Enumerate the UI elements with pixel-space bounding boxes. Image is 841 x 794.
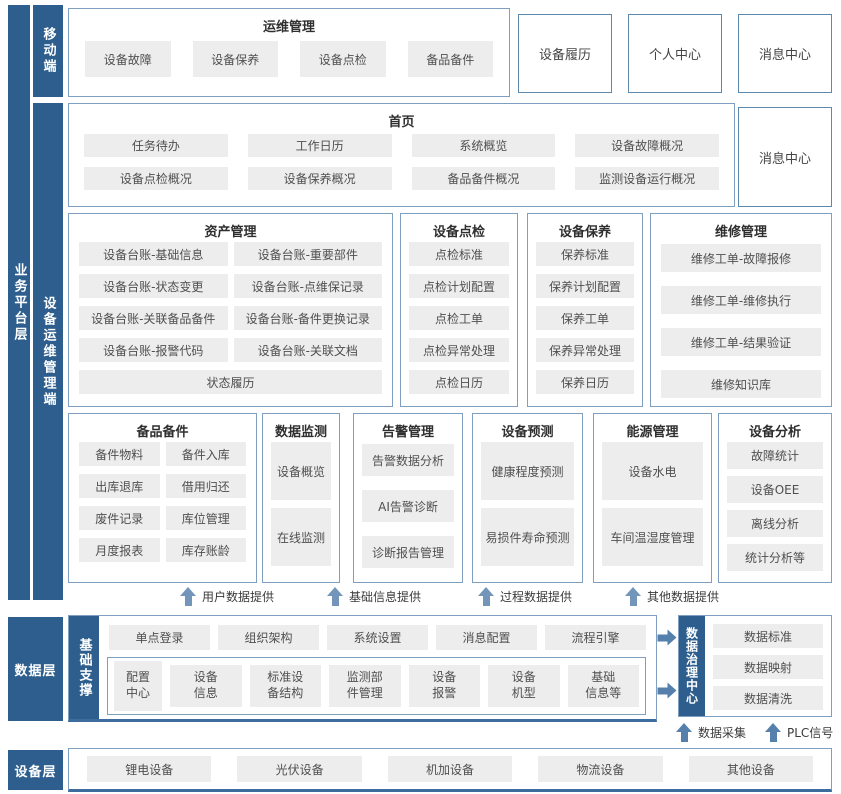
up-arrow-icon [625, 587, 641, 606]
mobile-item: 备品备件 [408, 41, 494, 77]
maintenance-item: 保养工单 [536, 306, 634, 330]
panel-repair: 维修管理 维修工单-故障报修 维修工单-维修执行 维修工单-结果验证 维修知识库 [650, 213, 832, 407]
governance-label: 数据治理中心 [679, 616, 705, 716]
alarm-item: 诊断报告管理 [362, 536, 454, 568]
mobile-item: 设备保养 [193, 41, 279, 77]
panel-title: 设备分析 [719, 414, 831, 440]
flow-data-collection: 数据采集 [676, 723, 746, 742]
base-item: 基础 信息等 [568, 665, 640, 707]
home-item: 监测设备运行概况 [575, 167, 719, 190]
flow-label: PLC信号 [787, 724, 833, 741]
asset-item: 设备台账-重要部件 [234, 242, 383, 266]
base-item: 组织架构 [218, 625, 319, 650]
home-item: 工作日历 [248, 134, 392, 157]
governance-item: 数据清洗 [713, 686, 823, 710]
base-item: 流程引擎 [545, 625, 646, 650]
flow-label: 数据采集 [698, 724, 746, 741]
panel-title: 资产管理 [69, 214, 392, 240]
flow-plc-signal: PLC信号 [765, 723, 833, 742]
monitor-item: 在线监测 [271, 508, 331, 566]
panel-title: 备品备件 [69, 414, 256, 440]
base-item: 设备 信息 [170, 665, 242, 707]
analysis-item: 故障统计 [727, 442, 823, 469]
panel-title: 首页 [69, 104, 734, 130]
home-item: 任务待办 [84, 134, 228, 157]
panel-alarm-management: 告警管理 告警数据分析 AI告警诊断 诊断报告管理 [353, 413, 463, 583]
inspection-item: 点检日历 [409, 370, 509, 394]
panel-inspection: 设备点检 点检标准 点检计划配置 点检工单 点检异常处理 点检日历 [400, 213, 518, 407]
inspection-item: 点检标准 [409, 242, 509, 266]
base-support-label: 基础支撑 [69, 616, 99, 719]
energy-item: 设备水电 [602, 442, 703, 500]
panel-home: 首页 任务待办 工作日历 系统概览 设备故障概况 设备点检概况 设备保养概况 备… [68, 103, 735, 207]
device-item: 机加设备 [388, 756, 512, 782]
energy-item: 车间温湿度管理 [602, 508, 703, 566]
asset-item: 状态履历 [79, 370, 382, 394]
inspection-item: 点检异常处理 [409, 338, 509, 362]
panel-title: 告警管理 [354, 414, 462, 440]
box-message-center-2: 消息中心 [738, 107, 832, 207]
asset-item: 设备台账-报警代码 [79, 338, 228, 362]
asset-item: 设备台账-点维保记录 [234, 274, 383, 298]
repair-item: 维修工单-结果验证 [661, 328, 821, 356]
spares-item: 备件物料 [79, 442, 160, 466]
analysis-item: 离线分析 [727, 510, 823, 537]
spares-item: 备件入库 [166, 442, 247, 466]
box-message-center: 消息中心 [738, 14, 832, 93]
flow-base-info: 基础信息提供 [327, 587, 421, 606]
spares-item: 废件记录 [79, 506, 160, 530]
analysis-item: 设备OEE [727, 476, 823, 503]
up-arrow-icon [676, 723, 692, 742]
base-item: 设备 报警 [409, 665, 481, 707]
base-item: 标准设 备结构 [250, 665, 322, 707]
right-arrow-icon [658, 683, 677, 699]
panel-data-governance: 数据治理中心 数据标准 数据映射 数据清洗 [678, 615, 832, 717]
panel-asset-management: 资产管理 设备台账-基础信息 设备台账-重要部件 设备台账-状态变更 设备台账-… [68, 213, 393, 407]
architecture-diagram: 业务平台层 移动端 设备运维管理端 运维管理 设备故障 设备保养 设备点检 备品… [0, 0, 841, 794]
panel-title: 设备预测 [473, 414, 582, 440]
base-item: 配置 中心 [114, 661, 162, 711]
panel-devices: 锂电设备 光伏设备 机加设备 物流设备 其他设备 [68, 748, 832, 792]
up-arrow-icon [478, 587, 494, 606]
flow-label: 其他数据提供 [647, 588, 719, 605]
asset-item: 设备台账-备件更换记录 [234, 306, 383, 330]
up-arrow-icon [327, 587, 343, 606]
asset-item: 设备台账-关联文档 [234, 338, 383, 362]
inspection-item: 点检工单 [409, 306, 509, 330]
predict-item: 易损件寿命预测 [481, 508, 574, 566]
asset-item: 设备台账-状态变更 [79, 274, 228, 298]
maintenance-item: 保养日历 [536, 370, 634, 394]
panel-maintenance: 设备保养 保养标准 保养计划配置 保养工单 保养异常处理 保养日历 [527, 213, 643, 407]
asset-item: 设备台账-基础信息 [79, 242, 228, 266]
home-item: 设备点检概况 [84, 167, 228, 190]
spares-item: 库位管理 [166, 506, 247, 530]
flow-label: 过程数据提供 [500, 588, 572, 605]
spares-item: 出库退库 [79, 474, 160, 498]
panel-title: 设备点检 [401, 214, 517, 240]
spares-item: 月度报表 [79, 538, 160, 562]
panel-energy-management: 能源管理 设备水电 车间温湿度管理 [593, 413, 712, 583]
mobile-item: 设备故障 [85, 41, 171, 77]
layer-label-mobile: 移动端 [33, 5, 63, 97]
asset-item: 设备台账-关联备品备件 [79, 306, 228, 330]
base-item: 消息配置 [436, 625, 537, 650]
flow-user-data: 用户数据提供 [180, 587, 274, 606]
layer-label-data: 数据层 [8, 617, 63, 721]
base-item: 监测部 件管理 [329, 665, 401, 707]
home-item: 系统概览 [412, 134, 556, 157]
flow-label: 基础信息提供 [349, 588, 421, 605]
repair-item: 维修知识库 [661, 370, 821, 398]
home-item: 备品备件概况 [412, 167, 556, 190]
monitor-item: 设备概览 [271, 442, 331, 500]
device-item: 光伏设备 [237, 756, 361, 782]
inspection-item: 点检计划配置 [409, 274, 509, 298]
home-item: 设备故障概况 [575, 134, 719, 157]
panel-mobile-ops: 运维管理 设备故障 设备保养 设备点检 备品备件 [68, 8, 510, 97]
maintenance-item: 保养计划配置 [536, 274, 634, 298]
maintenance-item: 保养标准 [536, 242, 634, 266]
alarm-item: AI告警诊断 [362, 490, 454, 522]
mobile-item: 设备点检 [300, 41, 386, 77]
home-item: 设备保养概况 [248, 167, 392, 190]
maintenance-item: 保养异常处理 [536, 338, 634, 362]
device-item: 其他设备 [689, 756, 813, 782]
device-item: 物流设备 [538, 756, 662, 782]
box-device-history: 设备履历 [518, 14, 612, 93]
panel-title: 能源管理 [594, 414, 711, 440]
layer-label-device: 设备层 [8, 750, 63, 790]
base-item: 设备 机型 [488, 665, 560, 707]
panel-title: 维修管理 [651, 214, 831, 240]
panel-spare-parts: 备品备件 备件物料 备件入库 出库退库 借用归还 废件记录 库位管理 月度报表 … [68, 413, 257, 583]
layer-label-business-platform: 业务平台层 [8, 5, 30, 600]
base-item: 系统设置 [327, 625, 428, 650]
panel-title: 设备保养 [528, 214, 642, 240]
flow-other-data: 其他数据提供 [625, 587, 719, 606]
spares-item: 库存账龄 [166, 538, 247, 562]
governance-item: 数据映射 [713, 655, 823, 679]
config-center-group: 配置 中心 设备 信息 标准设 备结构 监测部 件管理 设备 报警 设备 机型 … [107, 657, 646, 715]
right-arrow-icon [658, 630, 677, 646]
panel-base-support: 基础支撑 单点登录 组织架构 系统设置 消息配置 流程引擎 配置 中心 设备 信… [68, 615, 657, 722]
governance-item: 数据标准 [713, 624, 823, 648]
flow-label: 用户数据提供 [202, 588, 274, 605]
panel-device-analysis: 设备分析 故障统计 设备OEE 离线分析 统计分析等 [718, 413, 832, 583]
panel-title: 运维管理 [69, 9, 509, 35]
layer-label-device-ops: 设备运维管理端 [33, 103, 63, 600]
repair-item: 维修工单-维修执行 [661, 286, 821, 314]
device-item: 锂电设备 [87, 756, 211, 782]
panel-title: 数据监测 [263, 414, 339, 440]
panel-device-prediction: 设备预测 健康程度预测 易损件寿命预测 [472, 413, 583, 583]
flow-process-data: 过程数据提供 [478, 587, 572, 606]
repair-item: 维修工单-故障报修 [661, 244, 821, 272]
spares-item: 借用归还 [166, 474, 247, 498]
box-personal-center: 个人中心 [628, 14, 722, 93]
up-arrow-icon [765, 723, 781, 742]
alarm-item: 告警数据分析 [362, 444, 454, 476]
panel-data-monitoring: 数据监测 设备概览 在线监测 [262, 413, 340, 583]
predict-item: 健康程度预测 [481, 442, 574, 500]
analysis-item: 统计分析等 [727, 544, 823, 571]
up-arrow-icon [180, 587, 196, 606]
base-item: 单点登录 [109, 625, 210, 650]
